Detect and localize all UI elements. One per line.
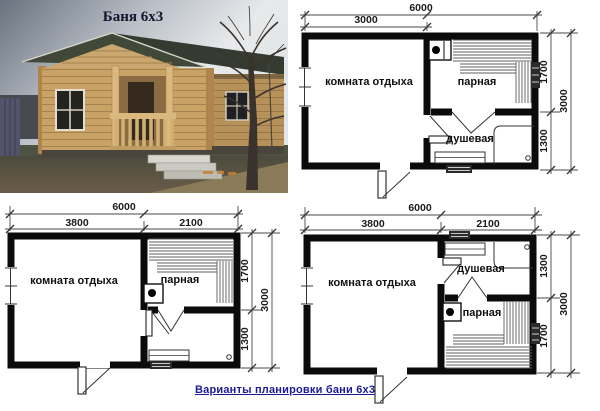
- photo-title: Баня 6х3: [103, 9, 163, 25]
- floor-vent: [449, 231, 470, 239]
- drain-icon: [525, 245, 530, 250]
- entrance-door-leaf: [375, 376, 383, 403]
- floor-vent: [150, 361, 172, 369]
- dim-height-bottom: 1300: [239, 327, 251, 351]
- wash-bench: [149, 350, 189, 361]
- entrance-door-swing: [383, 172, 410, 197]
- dim-height-total: 3000: [259, 288, 271, 312]
- drain-icon: [526, 156, 531, 161]
- entrance-opening: [80, 357, 110, 368]
- room-label-shower: душевая: [457, 263, 505, 275]
- dim-height-total: 3000: [558, 292, 570, 316]
- side-window: [226, 92, 248, 120]
- room-label-rest: комната отдыха: [30, 275, 119, 287]
- floor-plan-top-right: 6000 3000 1700 1300 3000 комната отдыха …: [290, 0, 600, 205]
- bathhouse-photo: Баня 6х3: [0, 0, 288, 193]
- stove-icon: [429, 40, 451, 60]
- dim-width-total: 6000: [409, 2, 433, 14]
- room-label-steam: парная: [458, 76, 497, 88]
- floor-plan-bottom-left: 6000 3800 2100 1700 1300 3000 комната от…: [0, 195, 300, 411]
- entrance-door-swing: [380, 377, 407, 402]
- entrance-door-leaf: [78, 367, 86, 394]
- dim-height-top: 1300: [538, 254, 550, 278]
- room-label-shower: душевая: [446, 133, 494, 145]
- eave-shadow: [212, 74, 284, 79]
- dim-height-total: 3000: [558, 89, 570, 113]
- stove-icon: [144, 284, 163, 303]
- room-label-steam: парная: [161, 274, 200, 286]
- floor-vent: [446, 165, 472, 173]
- dim-width-left: 3800: [361, 218, 385, 230]
- dim-width-total: 6000: [408, 202, 432, 214]
- outer-wall: [307, 238, 533, 371]
- shower-bench: [445, 243, 485, 255]
- dim-width-right: 2100: [476, 218, 500, 230]
- entrance-opening: [380, 161, 410, 172]
- dim-width-left: 3800: [65, 217, 89, 229]
- room-label-rest: комната отдыха: [328, 277, 417, 289]
- front-window: [56, 90, 84, 130]
- dim-height-bottom: 1300: [538, 129, 550, 153]
- bathhouse-layouts-page: Баня 6х3: [0, 0, 600, 411]
- page-caption-link[interactable]: Варианты планировки бани 6х3: [195, 384, 375, 396]
- dim-height-top: 1700: [538, 60, 550, 84]
- dim-height-top: 1700: [239, 259, 251, 283]
- shower-bench: [435, 152, 485, 163]
- dim-width-left: 3000: [354, 14, 378, 26]
- stove-icon: [443, 303, 461, 321]
- entrance-door-leaf: [378, 171, 386, 198]
- dim-width-right: 2100: [179, 217, 203, 229]
- wash-door-leaf: [146, 310, 152, 336]
- outer-wall: [305, 36, 535, 166]
- outer-wall: [11, 236, 237, 365]
- room-label-steam: парная: [463, 307, 502, 319]
- entrance-opening: [377, 366, 407, 377]
- corner-logs-right: [206, 68, 214, 154]
- dim-height-bottom: 1700: [538, 324, 550, 348]
- dim-width-total: 6000: [112, 201, 136, 213]
- fence: [0, 98, 20, 156]
- room-label-rest: комната отдыха: [325, 76, 414, 88]
- foundation-right: [212, 146, 284, 154]
- floor-plan-bottom-right: 6000 3800 2100 1300 1700 3000 комната от…: [290, 195, 600, 411]
- entrance-door-swing: [83, 368, 110, 393]
- drain-icon: [227, 355, 232, 360]
